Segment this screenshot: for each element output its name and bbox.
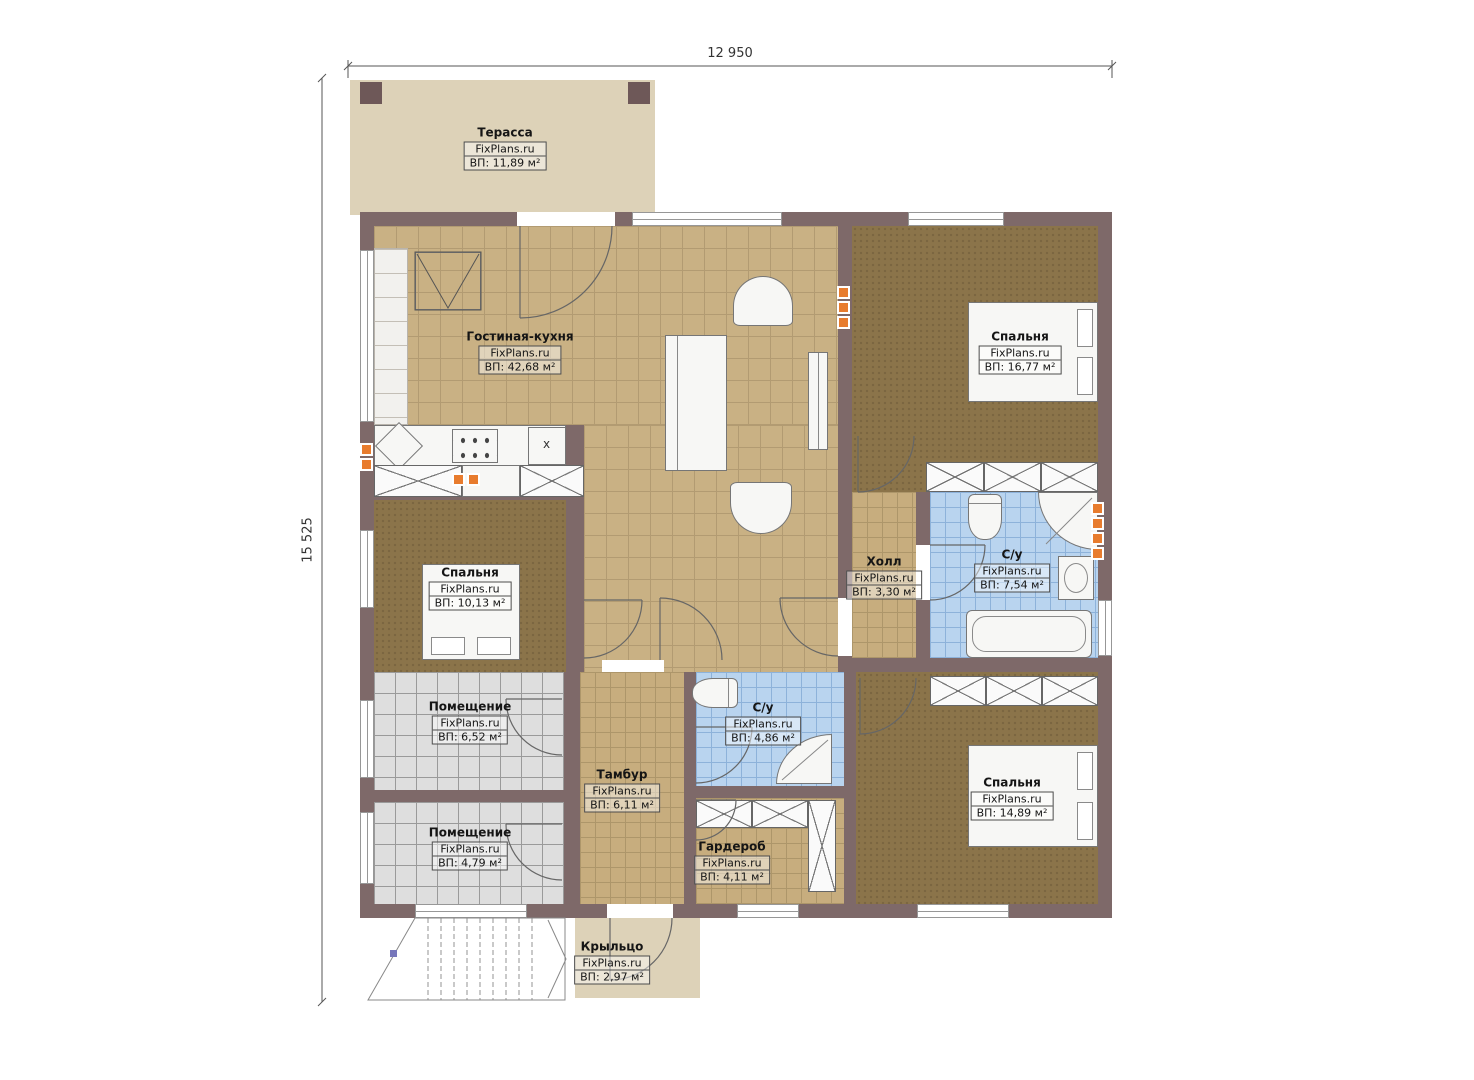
branding-text: FixPlans.ru: [433, 843, 507, 856]
room-label-tambour: Тамбур FixPlans.ruВП: 6,11 м²: [584, 768, 660, 813]
window: [360, 530, 374, 608]
branding-text: FixPlans.ru: [695, 857, 769, 870]
room-name: Помещение: [429, 826, 511, 840]
stove-icon: [452, 429, 498, 463]
room-area: ВП: 6,52 м²: [433, 730, 507, 744]
room-name: Терасса: [464, 126, 547, 140]
sink-marker: x: [543, 437, 550, 451]
room-name: Спальня: [979, 330, 1062, 344]
dimension-height: 15 525: [301, 517, 316, 563]
door-opening: [602, 660, 664, 672]
wardrobe-box: [986, 676, 1042, 706]
room-label-living-kitchen: Гостиная-кухня FixPlans.ruВП: 42,68 м²: [466, 330, 573, 375]
door-opening: [517, 212, 615, 226]
room-area: ВП: 11,89 м²: [465, 156, 546, 170]
window: [360, 700, 374, 778]
room-area: ВП: 3,30 м²: [847, 585, 921, 599]
room-area: ВП: 7,54 м²: [975, 578, 1049, 592]
wardrobe-box: [374, 465, 462, 497]
branding-text: FixPlans.ru: [465, 143, 546, 156]
room-name: Спальня: [971, 776, 1054, 790]
floor-plan-canvas: x: [0, 0, 1474, 1080]
branding-text: FixPlans.ru: [847, 572, 921, 585]
room-area: ВП: 16,77 м²: [980, 360, 1061, 374]
room-label-bathroom-bottom: С/у FixPlans.ruВП: 4,86 м²: [725, 701, 801, 746]
terrace-post: [628, 82, 650, 104]
room-name: Спальня: [429, 566, 512, 580]
branding-text: FixPlans.ru: [980, 347, 1061, 360]
room-label-wardrobe-room: Гардероб FixPlans.ruВП: 4,11 м²: [694, 840, 770, 885]
fireplace-icon: [415, 252, 481, 310]
room-area: ВП: 10,13 м²: [430, 596, 511, 610]
room-label-room-1: Помещение FixPlans.ruВП: 6,52 м²: [429, 700, 511, 745]
branding-text: FixPlans.ru: [975, 565, 1049, 578]
window: [917, 904, 1009, 918]
wardrobe-box: [520, 465, 584, 497]
room-name: С/у: [725, 701, 801, 715]
radiator-icon: [837, 286, 850, 329]
toilet-icon: [968, 494, 1002, 540]
room-area: ВП: 4,11 м²: [695, 870, 769, 884]
window: [1098, 600, 1112, 656]
wardrobe-box: [752, 800, 808, 828]
wardrobe-box: [808, 800, 836, 892]
glazing-strip: [374, 248, 408, 425]
room-area: ВП: 4,79 м²: [433, 856, 507, 870]
bathtub-icon: [966, 610, 1092, 658]
room-label-bedroom-left: Спальня FixPlans.ruВП: 10,13 м²: [429, 566, 512, 611]
window: [360, 250, 374, 422]
entrance-door-opening: [607, 904, 673, 918]
wardrobe-box: [926, 462, 984, 492]
room-area: ВП: 4,86 м²: [726, 731, 800, 745]
window: [415, 904, 527, 918]
room-area: ВП: 42,68 м²: [480, 360, 561, 374]
branding-text: FixPlans.ru: [585, 785, 659, 798]
room-area: ВП: 6,11 м²: [585, 798, 659, 812]
wardrobe-box: [930, 676, 986, 706]
room-area: ВП: 14,89 м²: [972, 806, 1053, 820]
stairs-icon: [368, 918, 566, 1000]
window: [737, 904, 799, 918]
room-label-bedroom-bottom-right: Спальня FixPlans.ruВП: 14,89 м²: [971, 776, 1054, 821]
window: [360, 812, 374, 884]
room-name: Помещение: [429, 700, 511, 714]
branding-text: FixPlans.ru: [972, 793, 1053, 806]
room-name: Гостиная-кухня: [466, 330, 573, 344]
window: [632, 212, 782, 226]
wardrobe-box: [984, 462, 1041, 492]
room-area: ВП: 2,97 м²: [575, 970, 649, 984]
room-label-room-2: Помещение FixPlans.ruВП: 4,79 м²: [429, 826, 511, 871]
room-label-terrace: Терасса FixPlans.ruВП: 11,89 м²: [464, 126, 547, 171]
room-name: Тамбур: [584, 768, 660, 782]
branding-text: FixPlans.ru: [480, 347, 561, 360]
room-label-porch: Крыльцо FixPlans.ruВП: 2,97 м²: [574, 940, 650, 985]
terrace-post: [360, 82, 382, 104]
dimension-width: 12 950: [707, 46, 753, 61]
radiator-icon: [360, 443, 373, 471]
radiator-icon: [452, 473, 480, 486]
room-name: Гардероб: [694, 840, 770, 854]
tv-stand-icon: [808, 352, 828, 450]
branding-text: FixPlans.ru: [575, 957, 649, 970]
room-label-hall: Холл FixPlans.ruВП: 3,30 м²: [846, 555, 922, 600]
room-label-bathroom-top: С/у FixPlans.ruВП: 7,54 м²: [974, 548, 1050, 593]
washbasin-icon: [1058, 556, 1094, 600]
branding-text: FixPlans.ru: [433, 717, 507, 730]
room-name: Холл: [846, 555, 922, 569]
radiator-icon: [1091, 502, 1104, 560]
branding-text: FixPlans.ru: [430, 583, 511, 596]
floor-passage-hall-bedroom: [852, 462, 926, 492]
room-label-bedroom-top-right: Спальня FixPlans.ruВП: 16,77 м²: [979, 330, 1062, 375]
room-name: С/у: [974, 548, 1050, 562]
window: [908, 212, 1004, 226]
sofa-icon: [665, 335, 727, 471]
door-opening: [838, 598, 852, 656]
room-name: Крыльцо: [574, 940, 650, 954]
branding-text: FixPlans.ru: [726, 718, 800, 731]
wardrobe-box: [1041, 462, 1098, 492]
wardrobe-box: [1042, 676, 1098, 706]
wardrobe-box: [696, 800, 752, 828]
